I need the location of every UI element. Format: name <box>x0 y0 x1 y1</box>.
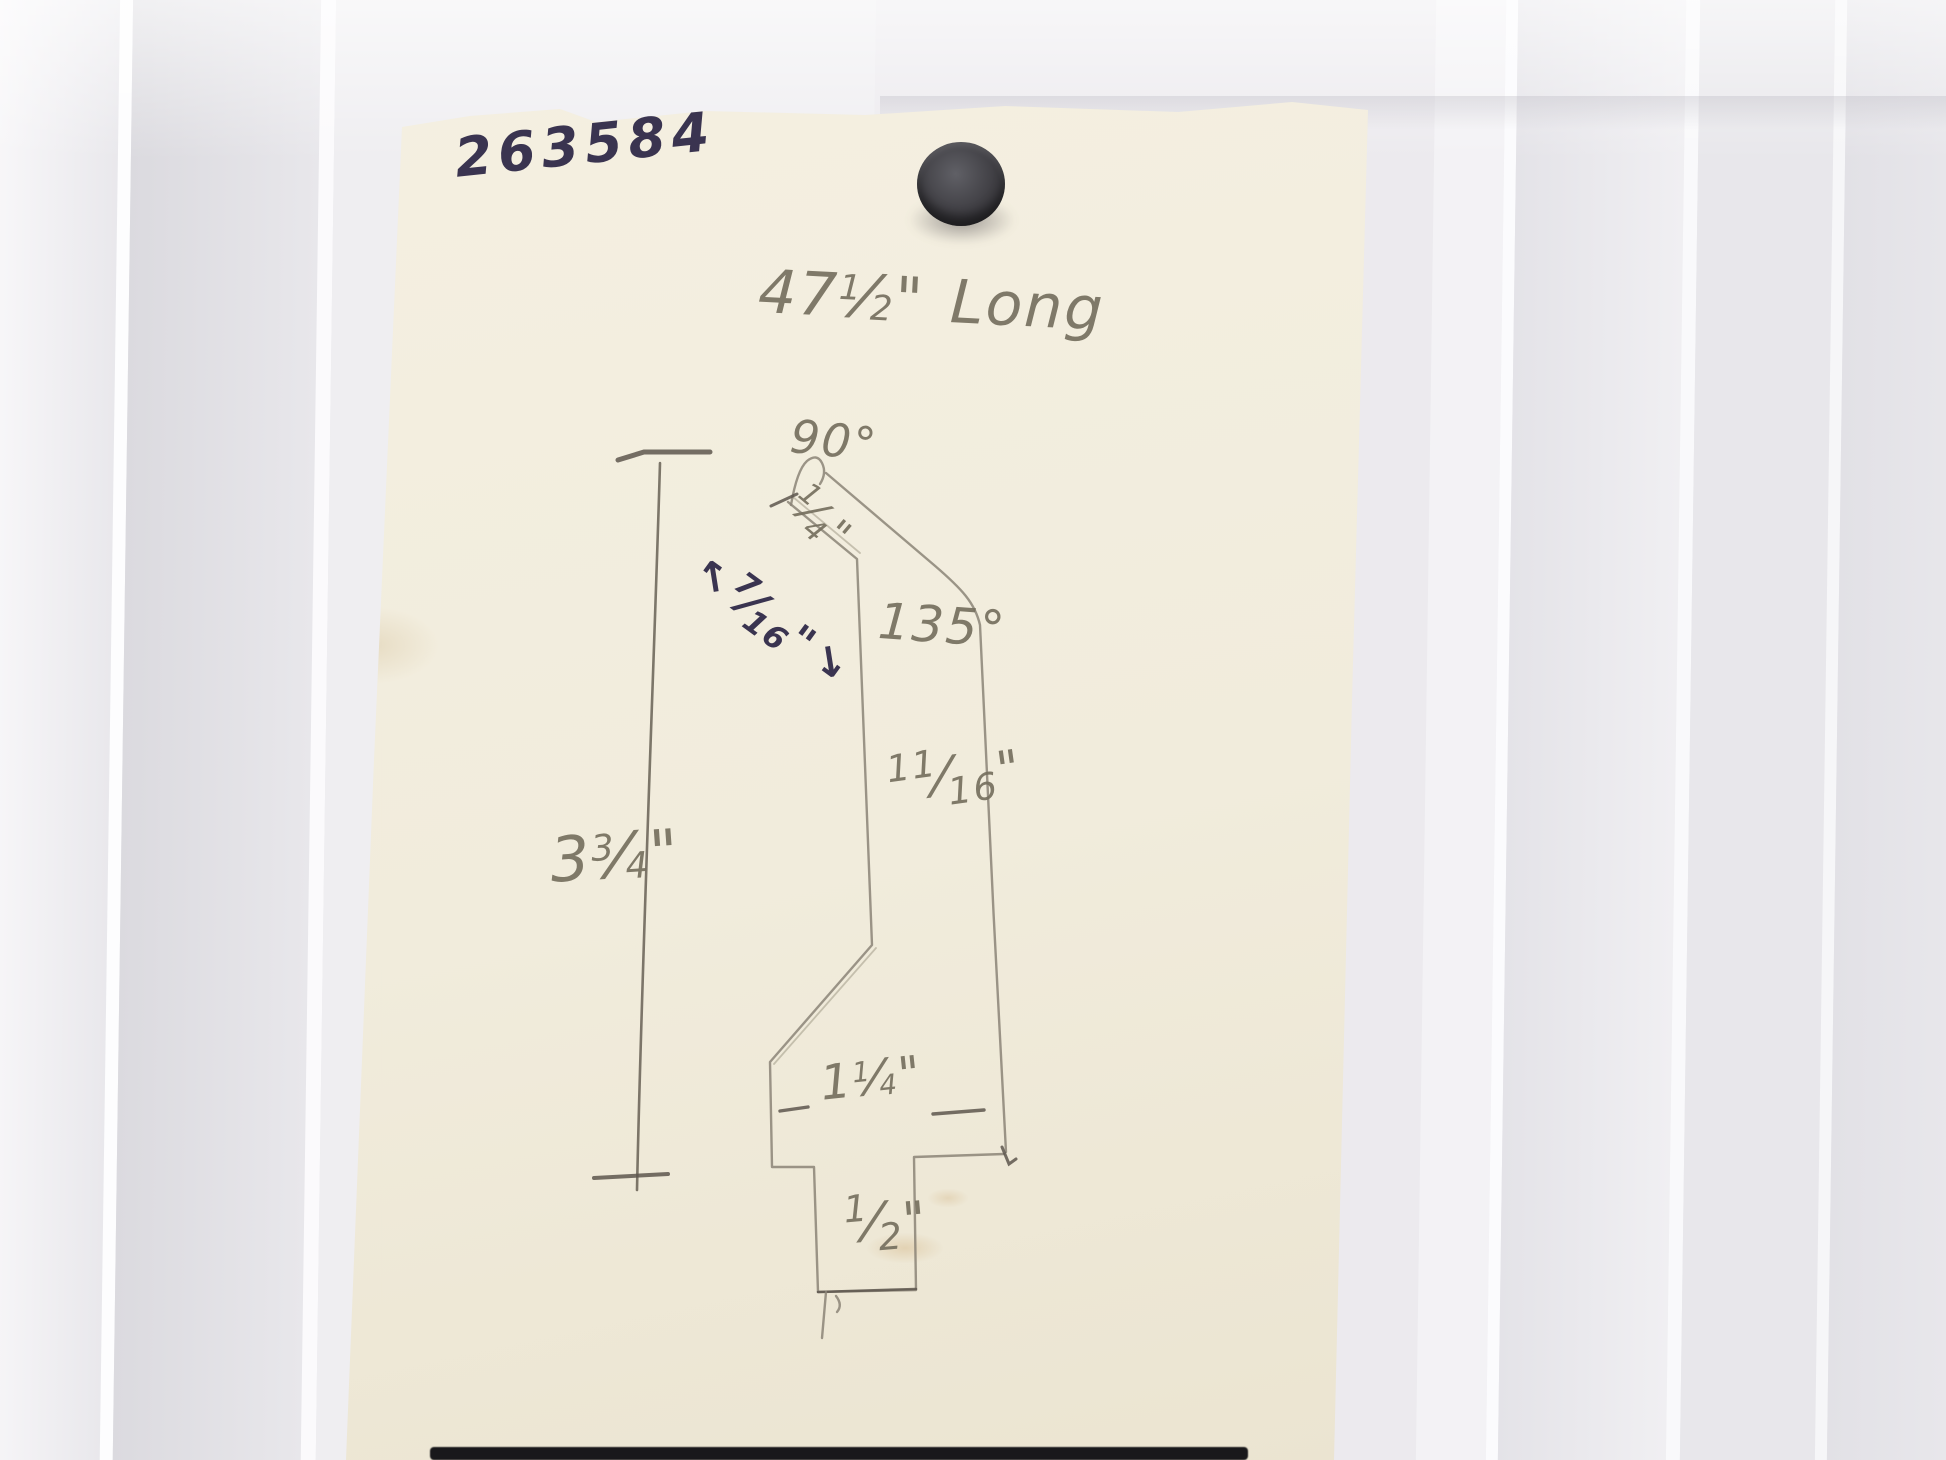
height-dimension-label: 33⁄4" <box>548 821 682 892</box>
length-fraction: 1⁄2 <box>837 261 897 334</box>
magnet <box>917 142 1005 226</box>
profile-double-stroke-step <box>774 948 876 1064</box>
tab-fraction: 1⁄2 <box>842 1192 905 1255</box>
height-den: 4 <box>624 845 652 888</box>
right-edge-hook <box>1002 1147 1016 1164</box>
base-width-dash-left <box>780 1107 808 1111</box>
photo-scene: 263584 471⁄2"Long 90° 1⁄4" ↖7⁄16"↘ 135° … <box>0 0 1946 1460</box>
height-fraction: 3⁄4 <box>589 817 652 894</box>
dimension-tick-bottom <box>594 1174 668 1178</box>
base-width-dash-right <box>933 1110 984 1114</box>
tab-tick-mark <box>822 1292 826 1338</box>
base-width-label: 11⁄4" <box>818 1049 925 1107</box>
length-frac-den: 2 <box>869 289 895 330</box>
length-suffix: Long <box>949 267 1107 345</box>
tab-unit: " <box>900 1190 930 1250</box>
dimension-tick-top <box>618 452 710 460</box>
length-whole: 47 <box>757 257 841 331</box>
height-whole: 3 <box>548 821 594 897</box>
tab-bottom-edge <box>818 1289 916 1292</box>
length-unit: " <box>893 264 926 335</box>
side-fraction: 11⁄16 <box>885 742 1001 815</box>
tab-den: 2 <box>877 1215 906 1260</box>
angle-top-label: 90° <box>788 413 880 468</box>
tab-tick-hook <box>836 1296 840 1312</box>
angle-bend-label: 135° <box>877 596 1009 655</box>
angle-top-text: 90° <box>788 409 881 472</box>
angle-bend-text: 135° <box>876 592 1008 659</box>
base-width-fraction: 1⁄4 <box>850 1048 901 1108</box>
side-num: 11 <box>884 742 941 792</box>
height-unit: " <box>647 815 683 890</box>
length-note: 471⁄2"Long <box>757 262 1106 340</box>
side-den: 16 <box>945 764 1002 814</box>
tab-dimension-label: 1⁄2" <box>842 1185 930 1260</box>
bottom-shadow-strip <box>430 1447 1248 1460</box>
